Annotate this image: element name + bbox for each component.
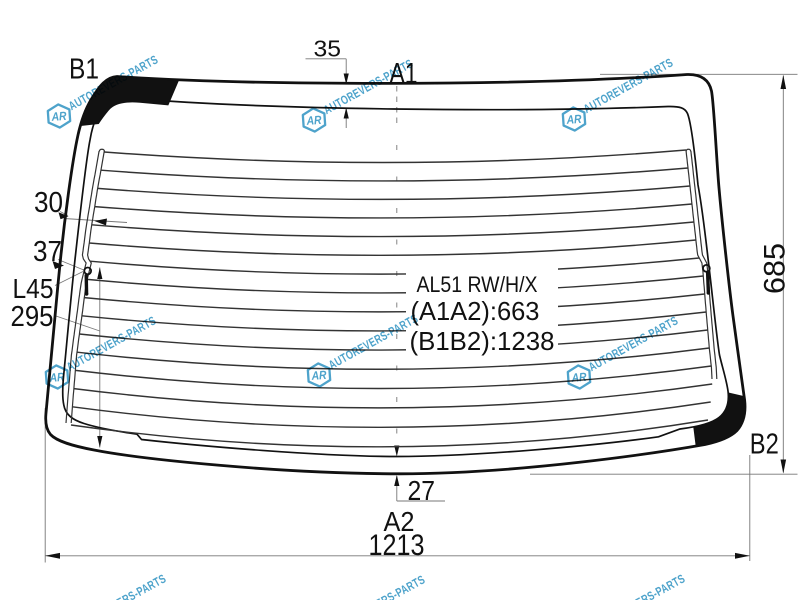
svg-text:AR: AR (48, 370, 65, 385)
svg-text:27: 27 (408, 475, 436, 506)
svg-text:AR: AR (310, 368, 327, 383)
svg-text:295: 295 (11, 301, 54, 333)
svg-text:(A1A2):663: (A1A2):663 (411, 296, 540, 326)
svg-text:AR: AR (50, 109, 67, 124)
svg-text:35: 35 (314, 36, 342, 62)
svg-text:AR: AR (570, 370, 587, 385)
svg-text:L45: L45 (13, 273, 54, 304)
svg-text:AR: AR (565, 112, 582, 127)
svg-text:B2: B2 (750, 429, 779, 461)
svg-text:AL51 RW/H/X: AL51 RW/H/X (417, 272, 538, 297)
svg-text:AR: AR (305, 113, 322, 128)
svg-text:B1: B1 (69, 54, 99, 86)
svg-text:1213: 1213 (369, 529, 425, 562)
svg-text:685: 685 (759, 243, 792, 294)
svg-text:(B1B2):1238: (B1B2):1238 (410, 326, 555, 356)
svg-text:37: 37 (33, 236, 62, 268)
svg-text:30: 30 (34, 187, 63, 219)
